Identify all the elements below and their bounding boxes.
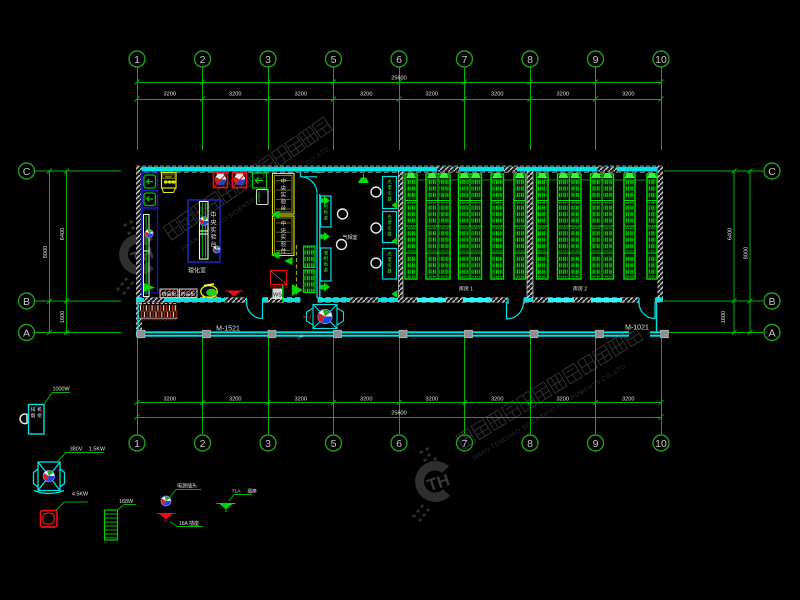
svg-text:色: 色 xyxy=(323,261,328,267)
svg-text:B: B xyxy=(768,296,775,308)
svg-text:16A 插座: 16A 插座 xyxy=(179,520,199,527)
svg-text:理化室: 理化室 xyxy=(188,267,206,275)
svg-text:C: C xyxy=(768,166,776,178)
svg-text:插座: 插座 xyxy=(247,488,257,495)
svg-text:实: 实 xyxy=(210,226,216,234)
svg-text:3200: 3200 xyxy=(360,397,372,403)
svg-text:6: 6 xyxy=(396,438,402,450)
svg-text:中: 中 xyxy=(280,177,286,185)
svg-text:3200: 3200 xyxy=(229,92,241,98)
svg-text:380V: 380V xyxy=(70,447,83,453)
svg-text:1600: 1600 xyxy=(721,311,727,323)
svg-text:3200: 3200 xyxy=(426,397,438,403)
svg-text:央: 央 xyxy=(210,218,217,226)
svg-text:XAJ: XAJ xyxy=(303,315,311,320)
svg-text:3200: 3200 xyxy=(295,397,307,403)
svg-text:仪: 仪 xyxy=(387,226,392,231)
svg-text:药品柜: 药品柜 xyxy=(162,291,177,298)
svg-text:T1A: T1A xyxy=(232,489,242,495)
svg-text:3200: 3200 xyxy=(557,92,569,98)
svg-text:验: 验 xyxy=(280,197,286,205)
svg-text:25600: 25600 xyxy=(391,76,407,82)
svg-text:M-1521: M-1521 xyxy=(216,326,240,333)
svg-text:5: 5 xyxy=(331,54,337,66)
svg-text:药品柜: 药品柜 xyxy=(181,291,196,298)
svg-text:谱: 谱 xyxy=(323,266,328,273)
svg-text:央: 央 xyxy=(280,226,286,234)
svg-text:25600: 25600 xyxy=(391,411,407,417)
svg-text:验: 验 xyxy=(210,233,217,241)
svg-text:央: 央 xyxy=(280,184,286,192)
svg-text:3: 3 xyxy=(265,438,271,450)
svg-text:A: A xyxy=(23,328,30,340)
svg-text:3: 3 xyxy=(265,54,271,66)
svg-text:2: 2 xyxy=(200,438,206,450)
svg-text:电源插头: 电源插头 xyxy=(177,483,197,490)
svg-text:烟: 烟 xyxy=(31,412,36,419)
svg-text:气: 气 xyxy=(323,198,328,204)
svg-text:WbE: WbE xyxy=(165,175,173,179)
svg-text:8000: 8000 xyxy=(43,246,49,258)
svg-text:1600: 1600 xyxy=(60,311,66,323)
svg-text:6400: 6400 xyxy=(728,228,734,240)
svg-text:中: 中 xyxy=(280,220,286,228)
svg-text:3200: 3200 xyxy=(229,397,241,403)
svg-text:1: 1 xyxy=(134,54,140,66)
svg-text:1000W: 1000W xyxy=(52,387,70,393)
svg-text:9: 9 xyxy=(593,54,599,66)
svg-text:3200: 3200 xyxy=(491,397,503,403)
svg-text:1: 1 xyxy=(134,438,140,450)
svg-text:7: 7 xyxy=(462,438,468,450)
svg-text:实: 实 xyxy=(280,233,286,241)
svg-text:C: C xyxy=(23,166,31,178)
svg-text:5: 5 xyxy=(331,438,337,450)
svg-text:验: 验 xyxy=(280,240,286,248)
svg-text:台: 台 xyxy=(280,204,286,212)
svg-text:3200: 3200 xyxy=(557,397,569,403)
svg-text:3200: 3200 xyxy=(426,92,438,98)
svg-text:6: 6 xyxy=(396,54,402,66)
svg-text:3200: 3200 xyxy=(164,397,176,403)
svg-text:2: 2 xyxy=(200,54,206,66)
svg-text:8: 8 xyxy=(527,438,533,450)
svg-text:10: 10 xyxy=(655,54,667,66)
svg-text:台: 台 xyxy=(210,241,216,249)
svg-text:仪: 仪 xyxy=(387,263,392,268)
svg-text:9: 9 xyxy=(593,438,599,450)
svg-text:谱: 谱 xyxy=(323,214,328,221)
svg-text:B: B xyxy=(23,296,30,308)
svg-text:实: 实 xyxy=(280,191,286,199)
svg-text:4.5KW: 4.5KW xyxy=(72,492,89,498)
svg-text:3200: 3200 xyxy=(491,92,503,98)
svg-text:3200: 3200 xyxy=(360,92,372,98)
svg-text:台: 台 xyxy=(280,247,286,255)
svg-text:仪: 仪 xyxy=(387,191,392,196)
svg-text:8: 8 xyxy=(527,54,533,66)
svg-text:3200: 3200 xyxy=(164,92,176,98)
svg-text:3200: 3200 xyxy=(622,397,634,403)
svg-text:8000: 8000 xyxy=(744,247,750,259)
svg-text:6400: 6400 xyxy=(60,228,66,240)
svg-text:M-1021: M-1021 xyxy=(625,325,649,332)
svg-text:3200: 3200 xyxy=(295,92,307,98)
svg-text:A: A xyxy=(768,328,775,340)
svg-text:WS: WS xyxy=(273,293,282,299)
svg-text:10: 10 xyxy=(655,438,667,450)
svg-text:组: 组 xyxy=(37,412,42,418)
svg-text:库房 2: 库房 2 xyxy=(573,286,587,293)
svg-text:7: 7 xyxy=(462,54,468,66)
svg-text:3200: 3200 xyxy=(622,92,634,98)
svg-text:库房 1: 库房 1 xyxy=(459,286,473,293)
svg-text:168W: 168W xyxy=(119,499,134,505)
svg-text:中: 中 xyxy=(210,211,216,219)
svg-text:色: 色 xyxy=(323,209,328,215)
svg-text:1.5KW: 1.5KW xyxy=(89,447,106,453)
